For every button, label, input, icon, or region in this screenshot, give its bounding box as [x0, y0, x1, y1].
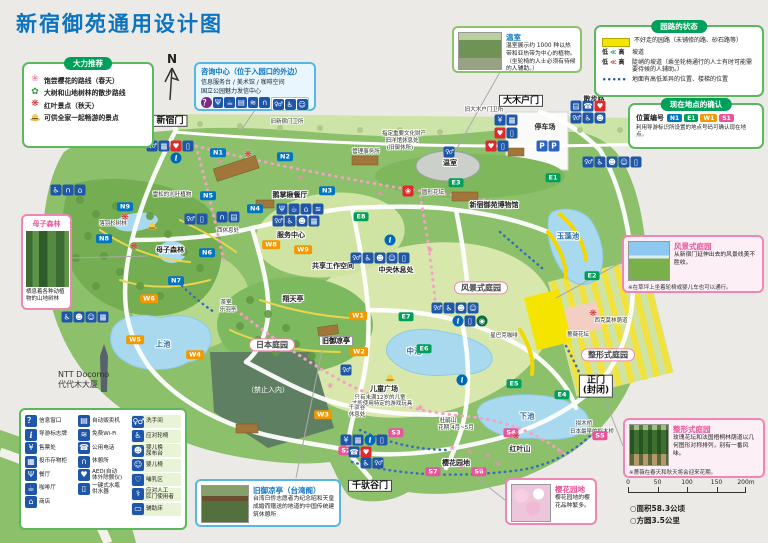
facility-label: 应对轮椅 [146, 433, 168, 439]
position-number-badge: N1 [667, 114, 682, 122]
hat-icon [30, 114, 40, 121]
cafe-icon: ☕ [25, 483, 37, 495]
park-perimeter-stat: ○方圆3.5公里 [630, 515, 685, 527]
scale-bar: 050100150200m [628, 479, 746, 493]
facility-label: 休憩所 [92, 458, 109, 464]
path-status-legend: 园路的状态 不好走的园路（未铺修的路、砂石路等）低 ≪ 高坡道低 ≪ 高陡峭的坡… [594, 25, 764, 97]
greenhouse-dome [416, 151, 480, 181]
facility-legend-item: ☎公用电话 [78, 442, 128, 454]
north-arrow-icon [160, 66, 184, 106]
location-check-note: 利用导游标识所设置的地点号码可确认现在地点。 [636, 125, 756, 139]
vending-icon: ▤ [78, 415, 90, 427]
facility-label: 辅助床 [146, 506, 163, 512]
facility-legend-item: ♥AED(自动 体外除颤仪) [78, 469, 128, 481]
steps-dots-icon: ••••• [602, 76, 628, 85]
formal-garden-callout: 整形式庭园 玫瑰花坛和法国梧桐林荫道以几何图形对称排列，别有一番风味。 ※蔷薇在… [623, 418, 765, 478]
position-number-badge: S1 [719, 114, 734, 122]
park-area-stat: ○面积58.3公顷 [630, 503, 685, 515]
recommend-item-label: 饱尝樱花的路线（春天） [44, 75, 119, 85]
ntt-line1: NTT Docomo [58, 370, 109, 380]
location-check-legend: 现在地点的确认 位置编号 N1E1W1S1 利用导游标识所设置的地点号码可确认现… [628, 103, 764, 149]
facility-legend-item: ♀♂洗手间 [131, 415, 181, 428]
recommend-title: 大力推荐 [64, 57, 112, 70]
facility-legend-item: Ψ餐厅 [25, 469, 75, 481]
ticket-icon: ¥ [25, 442, 37, 454]
water-icon: ▯ [78, 483, 90, 495]
recommend-legend: 大力推荐 ❀饱尝樱花的路线（春天）✿大树和山地树林的散步路线❋红叶景点（秋天）可… [22, 62, 154, 148]
facility-legend-item: ▤自动贩卖机 [78, 415, 128, 427]
facility-label: 信息窗口 [39, 418, 61, 424]
facility-legend-item: ≋免费Wi-Fi [78, 429, 128, 441]
babychair-icon: ☺ [297, 99, 308, 110]
facility-label: AED(自动 体外除颤仪) [92, 469, 122, 481]
position-number-badge: W1 [700, 114, 717, 122]
recommend-item: ✿大树和山地树林的散步路线 [30, 87, 146, 97]
facility-columns: ？信息窗口i导游标志牌¥售票处▦投币存物柜Ψ餐厅☕咖啡厅⌂商店▤自动贩卖机≋免费… [25, 415, 181, 516]
facility-legend-item: ¥售票处 [25, 442, 75, 454]
recommend-item: 可供全家一起畅游的景点 [30, 112, 146, 122]
ostomy-icon: ⚕ [132, 488, 144, 500]
facility-legend: ？信息窗口i导游标志牌¥售票处▦投币存物柜Ψ餐厅☕咖啡厅⌂商店▤自动贩卖机≋免费… [19, 408, 187, 530]
info-center-callout: 咨询中心（位于入园口的外边） 信息服务台 / 美术馆 / 咖啡空间 国立公园魅力… [194, 62, 316, 111]
wheelchair-icon: ♿ [132, 430, 144, 442]
nursing-icon: ♡ [132, 474, 144, 486]
scale-tick-label: 0 [626, 479, 630, 486]
facility-label: 婴儿椅 [146, 462, 163, 468]
facility-label: 免费Wi-Fi [92, 431, 117, 437]
path-status-label: 坡道 [632, 49, 644, 57]
mother-forest-callout: 母子森林 栖息着各种动植物的山地树林 [21, 214, 72, 310]
info-center-icons: ？Ψ☕▤≋∩♀♂♿☺ [201, 97, 309, 111]
facility-label: 售票处 [39, 445, 56, 451]
cherry-area-callout: 樱花园地 樱花园地的樱花品种繁多。 [505, 478, 597, 525]
question-icon: ？ [25, 415, 37, 427]
vending-icon: ▤ [236, 97, 247, 108]
info-center-line1: 信息服务台 / 美术馆 / 咖啡空间 [201, 77, 309, 86]
facility-legend-item: i导游标志牌 [25, 429, 75, 441]
babychair-icon: ☺ [132, 459, 144, 471]
location-badges: N1E1W1S1 [667, 114, 734, 122]
compass: N [157, 52, 187, 110]
facility-label: 洗手间 [146, 418, 163, 424]
slope-gradient-icon: 低 ≪ 高 [602, 49, 628, 57]
landscape-garden-photo [628, 241, 670, 281]
pavilion-callout: 旧御凉亭（台湾阁） 台湾日侨志愿者为纪念昭和天皇成婚而赠送的地道的中国传统建筑休… [195, 479, 341, 527]
facility-label: 导游标志牌 [39, 431, 67, 437]
recommend-item-label: 大树和山地树林的散步路线 [44, 87, 126, 97]
scale-line [628, 487, 746, 493]
greenhouse-callout: 温室 温室展示约 1000 种以热带和亚热带为中心的植物。（坐轮椅的人士必须有待… [452, 26, 582, 73]
park-stats: ○面积58.3公顷 ○方圆3.5公里 [630, 503, 685, 527]
recommend-item: ❋红叶景点（秋天） [30, 100, 146, 110]
diaper-icon: ☻ [132, 445, 144, 457]
facility-label: 商店 [39, 499, 50, 505]
facility-legend-item: ☕咖啡厅 [25, 483, 75, 495]
facility-legend-item: ▯一键式水瓶 供水器 [78, 483, 128, 495]
locker-icon: ▦ [25, 456, 37, 468]
sakura-icon: ❀ [30, 75, 40, 84]
path-status-label: 地面有高低差异的位置、楼梯的位置 [632, 76, 728, 84]
recommend-item: ❀饱尝樱花的路线（春天） [30, 75, 146, 85]
facility-legend-item: ♿应对轮椅 [131, 430, 181, 443]
facility-legend-item: ▦投币存物柜 [25, 456, 75, 468]
cherry-area-photo [511, 484, 551, 522]
ntt-building-label: NTT Docomo 代代木大厦 [58, 370, 109, 391]
info-center-title: 咨询中心（位于入园口的外边） [201, 67, 309, 77]
mother-forest-photo [26, 231, 69, 287]
info-icon: i [25, 429, 37, 441]
facility-legend-item: ☺婴儿椅 [131, 459, 181, 472]
facility-label: 婴儿换 尿布台 [146, 445, 163, 457]
wifi-icon: ≋ [248, 97, 259, 108]
path-status-label: 不好走的园路（未铺修的路、砂石路等） [634, 37, 742, 45]
question-icon: ？ [201, 97, 212, 108]
facility-label: 应对人工 肛门使用者 [146, 488, 174, 500]
yellow-path-swatch [602, 38, 630, 47]
phone-icon: ☎ [78, 442, 90, 454]
maple-icon: ❋ [30, 100, 40, 109]
path-status-item: •••••地面有高低差异的位置、楼梯的位置 [602, 76, 757, 85]
facility-legend-item: ∩休憩所 [78, 456, 128, 468]
path-status-title: 园路的状态 [651, 20, 707, 33]
formal-garden-photo [629, 424, 669, 466]
landscape-garden-callout: 风景式庭园 从新宿门延伸出去的风景线美不胜收。 ※在草坪上坐着轮椅或婴儿车也可以… [622, 235, 764, 293]
pavilion-photo [201, 485, 249, 523]
facility-legend-item: ⌂商店 [25, 496, 75, 508]
ntt-line2: 代代木大厦 [58, 380, 109, 390]
wifi-icon: ≋ [78, 429, 90, 441]
recommend-item-label: 可供全家一起畅游的景点 [44, 112, 119, 122]
facility-label: 一键式水瓶 供水器 [92, 483, 120, 495]
path-status-item: 低 ≪ 高陡峭的坡道（乘坐轮椅通行的人士有时可能需要待候的人辅助。） [602, 59, 757, 74]
universal-design-map: 旧新宿门卫所管理事务所指定重要文化财产旧洋馆休息处(旧御休所)旧大木户门卫所散步… [0, 0, 768, 543]
recommend-list: ❀饱尝樱花的路线（春天）✿大树和山地树林的散步路线❋红叶景点（秋天）可供全家一起… [30, 75, 146, 123]
rest-icon: ∩ [78, 456, 90, 468]
page-title: 新宿御苑通用设计图 [16, 8, 223, 38]
facility-label: 咖啡厅 [39, 485, 56, 491]
scale-tick-label: 100 [681, 479, 692, 486]
path-status-item: 不好走的园路（未铺修的路、砂石路等） [602, 37, 757, 47]
facility-label: 自动贩卖机 [92, 418, 120, 424]
bed-icon: ▭ [132, 503, 144, 515]
facility-legend-item: ☻婴儿换 尿布台 [131, 444, 181, 457]
restaurant-icon: Ψ [213, 97, 224, 108]
path-status-item: 低 ≪ 高坡道 [602, 49, 757, 57]
toilet-icon: ♀♂ [273, 99, 284, 110]
scale-ticks: 050100150200m [628, 479, 746, 487]
scale-tick-label: 150 [711, 479, 722, 486]
path-status-label: 陡峭的坡道（乘坐轮椅通行的人士有时可能需要待候的人辅助。） [632, 59, 757, 74]
formal-garden-note: ※蔷薇在春天和秋天将会迎来花期。 [629, 466, 759, 476]
cafe-icon: ☕ [224, 97, 235, 108]
facility-legend-item: ▭辅助床 [131, 503, 181, 516]
position-number-badge: E1 [684, 114, 698, 122]
facility-legend-item: ？信息窗口 [25, 415, 75, 427]
restaurant-icon: Ψ [25, 469, 37, 481]
facility-label: 公用电话 [92, 445, 114, 451]
shop-icon: ⌂ [25, 496, 37, 508]
scale-tick-label: 50 [654, 479, 662, 486]
mother-forest-title: 母子森林 [26, 219, 67, 229]
compass-n-label: N [157, 52, 187, 66]
scale-tick-label: 200m [737, 479, 754, 486]
facility-legend-item: ♡哺乳区 [131, 473, 181, 486]
rest-icon: ∩ [259, 97, 270, 108]
leaf-icon: ✿ [30, 88, 40, 97]
facility-label: 哺乳区 [146, 477, 163, 483]
toilet-icon: ♀♂ [132, 416, 144, 428]
path-status-rows: 不好走的园路（未铺修的路、砂石路等）低 ≪ 高坡道低 ≪ 高陡峭的坡道（乘坐轮椅… [602, 37, 757, 84]
location-check-caption: 位置编号 [636, 113, 664, 123]
recommend-item-label: 红叶景点（秋天） [44, 100, 98, 110]
facility-label: 餐厅 [39, 472, 50, 478]
landscape-garden-note: ※在草坪上坐着轮椅或婴儿车也可以通行。 [628, 281, 758, 291]
location-check-title: 现在地点的确认 [661, 98, 732, 111]
slope-gradient-icon: 低 ≪ 高 [602, 59, 628, 67]
accessible-toilet-icons: ♀♂♿☺ [271, 97, 309, 111]
aed-icon: ♥ [78, 469, 90, 481]
greenhouse-photo [458, 32, 502, 70]
info-center-line2: 国立公园魅力发信中心 [201, 86, 309, 95]
mother-forest-text: 栖息着各种动植物的山地树林 [26, 289, 67, 304]
facility-label: 投币存物柜 [39, 458, 67, 464]
wheelchair-icon: ♿ [285, 99, 296, 110]
facility-legend-item: ⚕应对人工 肛门使用者 [131, 488, 181, 501]
